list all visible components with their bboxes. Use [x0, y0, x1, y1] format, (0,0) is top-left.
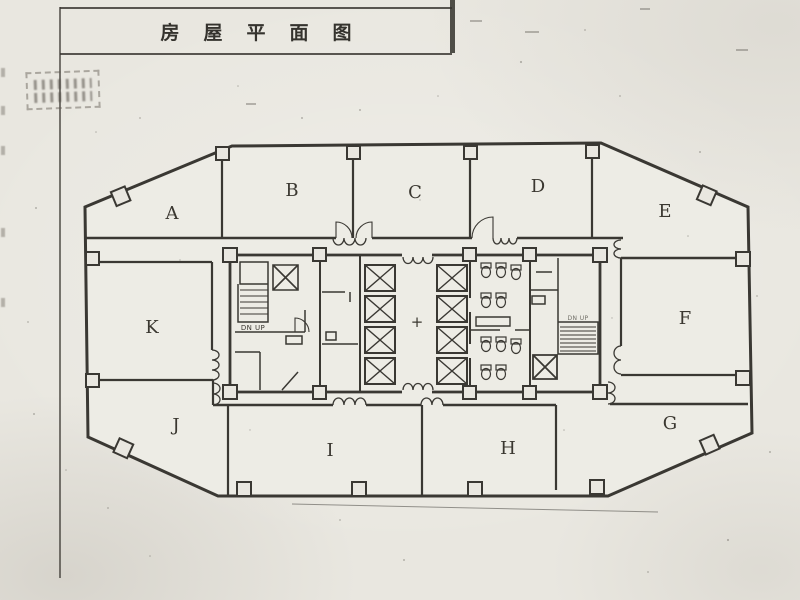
room-label-i: I: [326, 440, 333, 461]
room-label-f: F: [679, 308, 692, 329]
room-label-e: E: [658, 201, 671, 222]
room-label-b: B: [285, 180, 298, 201]
room-label-j: J: [170, 415, 179, 436]
scanned-floorplan-sheet: { "doc": { "title": "房屋平面图" }, "plan": {…: [0, 0, 800, 600]
stair-right-direction-label: DN UP: [567, 315, 588, 322]
room-label-a: A: [165, 203, 180, 224]
floor-plan-drawing: A B C D E F G H I J K DN UP DN UP +: [0, 0, 800, 600]
room-label-k: K: [145, 317, 159, 338]
scan-artifact-line: [292, 504, 658, 512]
core-center-mark: +: [411, 313, 424, 331]
room-label-g: G: [663, 413, 677, 434]
room-label-d: D: [531, 176, 545, 197]
stair-left-direction-label: DN UP: [241, 324, 265, 332]
room-label-h: H: [500, 438, 516, 459]
